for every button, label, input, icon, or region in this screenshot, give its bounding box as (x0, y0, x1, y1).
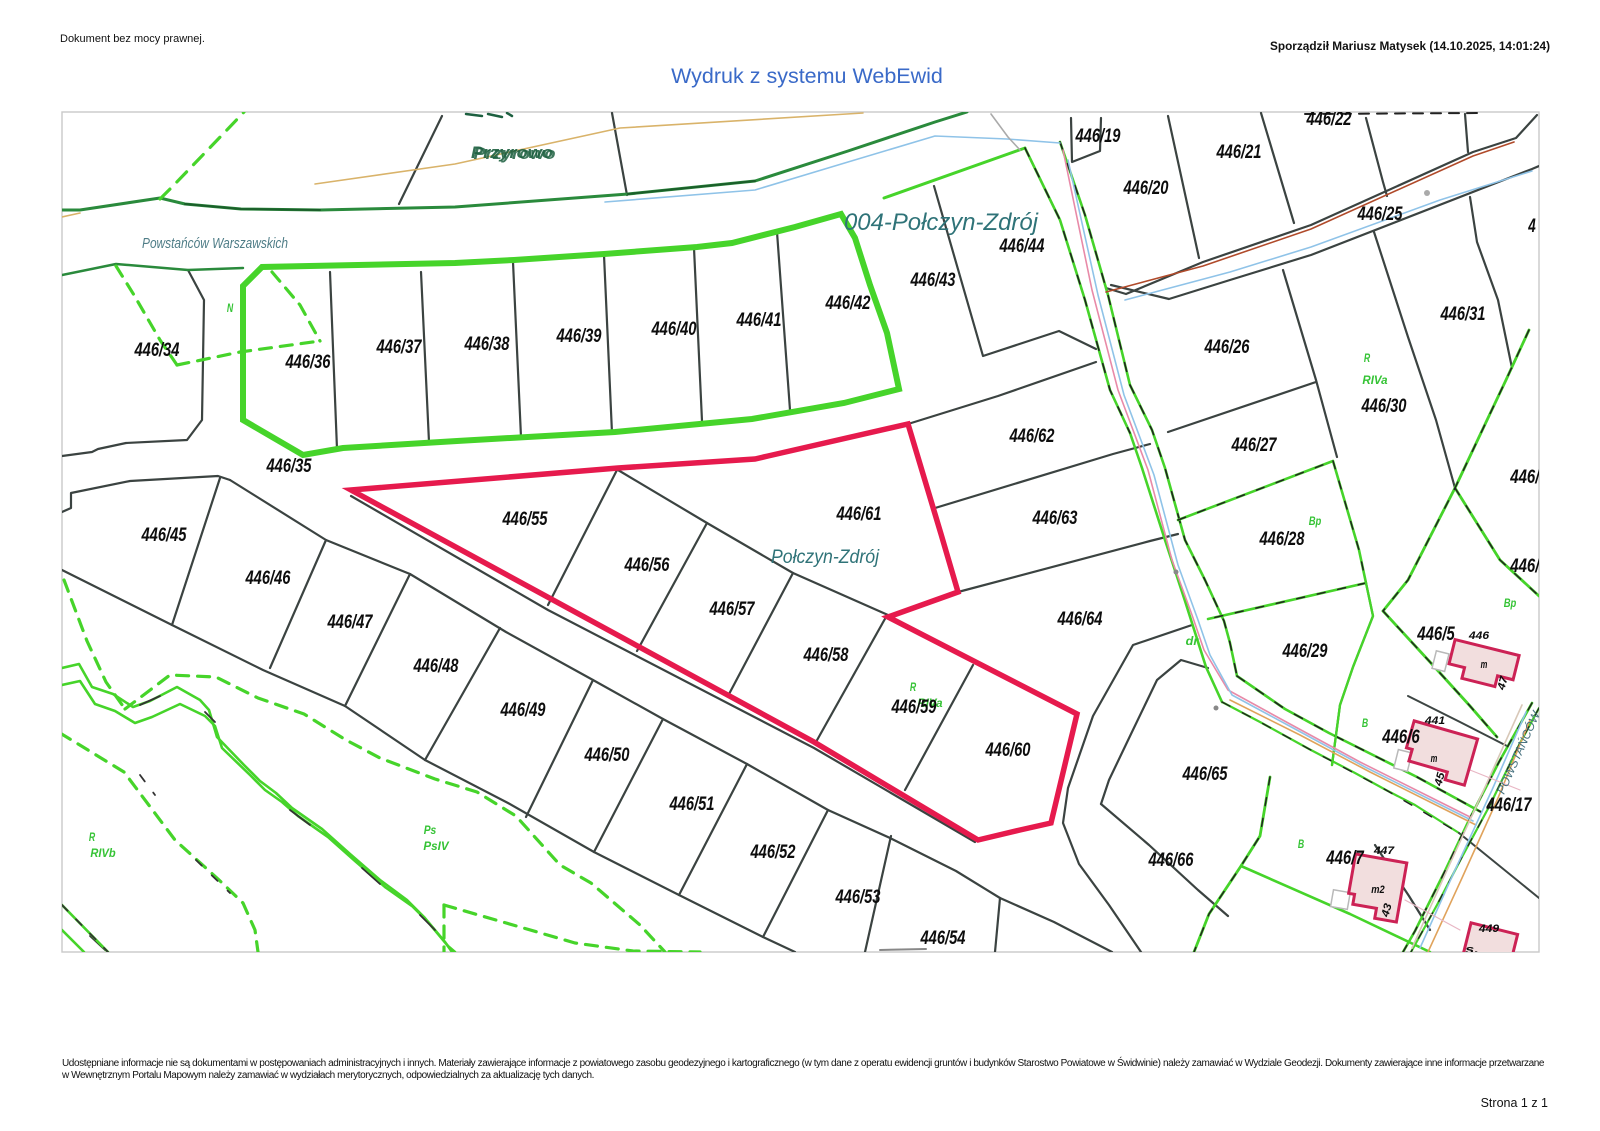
svg-text:B: B (1362, 716, 1369, 730)
svg-text:446: 446 (1468, 630, 1490, 642)
svg-text:B: B (1298, 837, 1305, 851)
svg-text:446/54: 446/54 (920, 928, 966, 949)
svg-text:dr: dr (1186, 634, 1200, 648)
svg-text:R: R (89, 830, 96, 844)
svg-text:446/34: 446/34 (134, 340, 180, 361)
svg-text:446/49: 446/49 (500, 700, 546, 721)
svg-text:446/35: 446/35 (266, 456, 312, 477)
svg-text:449: 449 (1478, 923, 1500, 935)
svg-text:446/29: 446/29 (1282, 641, 1328, 662)
svg-text:446/38: 446/38 (464, 334, 510, 355)
svg-text:446/4: 446/4 (1509, 556, 1548, 577)
svg-text:446/26: 446/26 (1204, 337, 1250, 358)
svg-text:446/41: 446/41 (736, 310, 782, 331)
svg-text:446/45: 446/45 (141, 525, 187, 546)
svg-text:446/19: 446/19 (1075, 126, 1121, 147)
svg-text:Bp: Bp (1504, 596, 1517, 610)
svg-text:446/61: 446/61 (836, 504, 882, 525)
svg-text:4: 4 (1528, 216, 1537, 237)
svg-text:446/53: 446/53 (835, 887, 881, 908)
svg-text:446/25: 446/25 (1357, 204, 1403, 225)
svg-text:446/5: 446/5 (1416, 624, 1455, 645)
svg-text:PsIV: PsIV (423, 839, 449, 853)
svg-text:RIVa: RIVa (1362, 373, 1388, 387)
svg-text:446/56: 446/56 (624, 555, 670, 576)
svg-text:m: m (1481, 659, 1488, 671)
svg-text:446/48: 446/48 (413, 656, 459, 677)
svg-text:Przyrowo: Przyrowo (471, 143, 553, 162)
svg-text:R: R (1364, 351, 1371, 365)
svg-text:446/7: 446/7 (1325, 848, 1364, 869)
svg-text:Ps: Ps (424, 823, 437, 837)
svg-text:446/60: 446/60 (985, 740, 1031, 761)
svg-text:446/64: 446/64 (1057, 609, 1103, 630)
svg-text:446/63: 446/63 (1032, 508, 1078, 529)
svg-text:Bp: Bp (1309, 514, 1322, 528)
svg-text:m: m (1431, 753, 1438, 765)
svg-text:446/30: 446/30 (1361, 396, 1407, 417)
svg-text:446/50: 446/50 (584, 745, 630, 766)
svg-text:446/62: 446/62 (1009, 426, 1055, 447)
svg-text:446/17: 446/17 (1486, 795, 1533, 816)
svg-text:004-Połczyn-Zdrój: 004-Połczyn-Zdrój (844, 209, 1039, 236)
svg-text:441: 441 (1424, 715, 1445, 727)
svg-text:446/37: 446/37 (376, 337, 423, 358)
svg-text:446/55: 446/55 (502, 509, 548, 530)
svg-text:s.: s. (1465, 944, 1478, 956)
svg-text:446/40: 446/40 (651, 319, 697, 340)
svg-text:446/39: 446/39 (556, 326, 602, 347)
svg-text:N: N (227, 301, 234, 315)
svg-text:446/31: 446/31 (1440, 304, 1486, 325)
svg-text:446/46: 446/46 (245, 568, 291, 589)
svg-text:446/6: 446/6 (1381, 727, 1420, 748)
svg-text:446/58: 446/58 (803, 645, 849, 666)
svg-text:446/59: 446/59 (891, 697, 937, 718)
svg-text:446/36: 446/36 (285, 352, 331, 373)
svg-text:446/43: 446/43 (910, 270, 956, 291)
svg-text:446/27: 446/27 (1231, 435, 1278, 456)
svg-text:Połczyn-Zdrój: Połczyn-Zdrój (771, 547, 880, 568)
svg-text:446/57: 446/57 (709, 599, 756, 620)
svg-text:RIVb: RIVb (90, 846, 115, 860)
svg-text:446/3: 446/3 (1509, 467, 1548, 488)
svg-text:446/22: 446/22 (1306, 109, 1352, 130)
svg-text:446/20: 446/20 (1123, 178, 1169, 199)
svg-text:446/66: 446/66 (1148, 850, 1194, 871)
svg-text:m2: m2 (1371, 884, 1384, 896)
svg-text:446/44: 446/44 (999, 236, 1045, 257)
svg-text:446/47: 446/47 (327, 612, 374, 633)
svg-text:446/65: 446/65 (1182, 764, 1228, 785)
svg-text:446/51: 446/51 (669, 794, 715, 815)
svg-text:446/21: 446/21 (1216, 142, 1262, 163)
svg-text:446/28: 446/28 (1259, 529, 1305, 550)
svg-text:446/52: 446/52 (750, 842, 796, 863)
svg-text:Powstańców Warszawskich: Powstańców Warszawskich (142, 235, 288, 252)
svg-text:447: 447 (1373, 845, 1395, 857)
svg-text:446/42: 446/42 (825, 293, 871, 314)
svg-text:R: R (910, 680, 917, 694)
